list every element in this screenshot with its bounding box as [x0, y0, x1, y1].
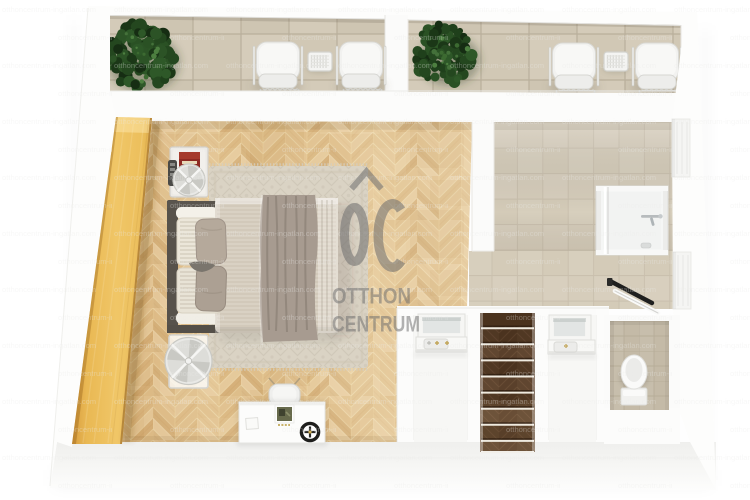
svg-text:CENTRUM: CENTRUM: [332, 312, 420, 337]
svg-text:OTTHON: OTTHON: [332, 284, 411, 309]
